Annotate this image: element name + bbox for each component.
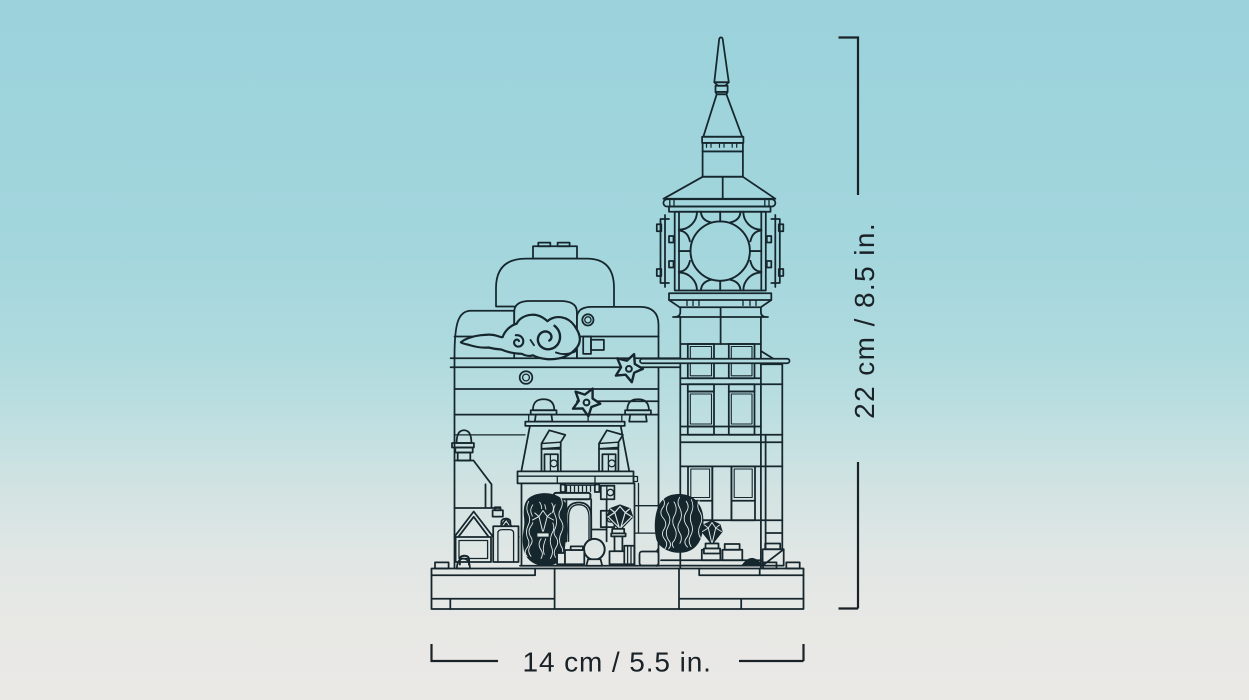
svg-text:14 cm / 5.5 in.: 14 cm / 5.5 in. — [523, 647, 712, 678]
svg-text:22 cm / 8.5 in.: 22 cm / 8.5 in. — [849, 222, 880, 419]
